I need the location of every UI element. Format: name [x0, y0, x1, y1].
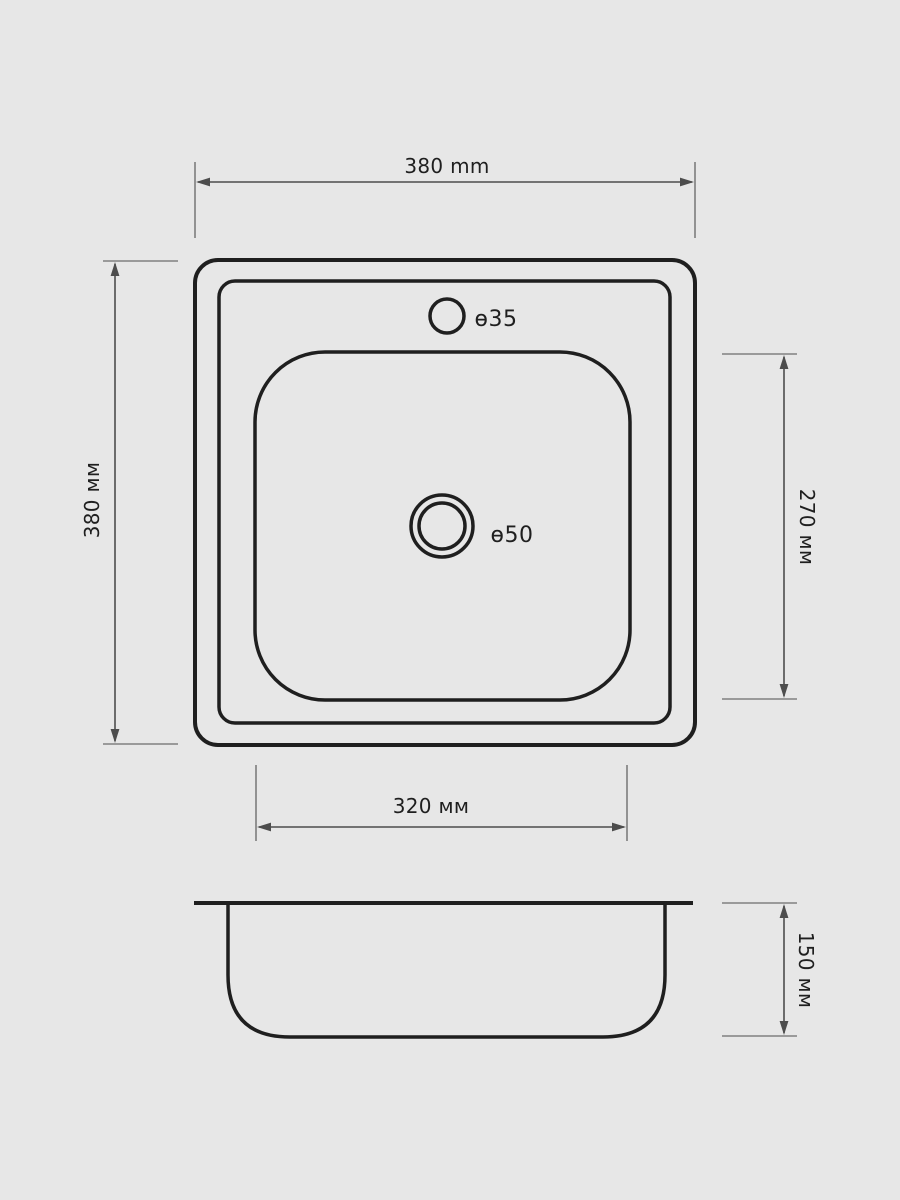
arrow-down-icon: [111, 729, 120, 743]
dim-bowl-depth: 270 мм: [722, 354, 819, 699]
top-view: ɵ35 ɵ50: [195, 260, 695, 745]
arrow-up-icon: [111, 262, 120, 276]
sink-technical-drawing: ɵ35 ɵ50 380 mm 380 мм: [0, 0, 900, 1200]
arrow-right-icon: [612, 823, 626, 832]
arrow-up-icon: [780, 355, 789, 369]
faucet-hole: [430, 299, 464, 333]
arrow-down-icon: [780, 1021, 789, 1035]
side-view: [194, 903, 693, 1037]
side-bowl-profile: [228, 903, 665, 1037]
dim-bowl-width: 320 мм: [256, 765, 627, 841]
faucet-hole-diameter-label: ɵ35: [475, 307, 518, 332]
arrow-left-icon: [196, 178, 210, 187]
drain-hole-inner: [419, 503, 465, 549]
bowl-outline: [255, 352, 630, 700]
dim-bowl-height: 150 мм: [722, 903, 818, 1036]
arrow-left-icon: [257, 823, 271, 832]
dim-overall-depth-label: 380 мм: [80, 462, 104, 539]
dim-bowl-depth-label: 270 мм: [795, 489, 819, 566]
arrow-right-icon: [680, 178, 694, 187]
dim-overall-width: 380 mm: [195, 154, 695, 238]
drawing-svg: ɵ35 ɵ50 380 mm 380 мм: [0, 0, 900, 1200]
dim-overall-width-label: 380 mm: [404, 154, 489, 178]
drain-diameter-label: ɵ50: [491, 523, 534, 548]
dim-bowl-width-label: 320 мм: [393, 794, 470, 818]
dim-bowl-height-label: 150 мм: [794, 932, 818, 1009]
arrow-up-icon: [780, 904, 789, 918]
dim-overall-depth: 380 мм: [80, 261, 178, 744]
arrow-down-icon: [780, 684, 789, 698]
